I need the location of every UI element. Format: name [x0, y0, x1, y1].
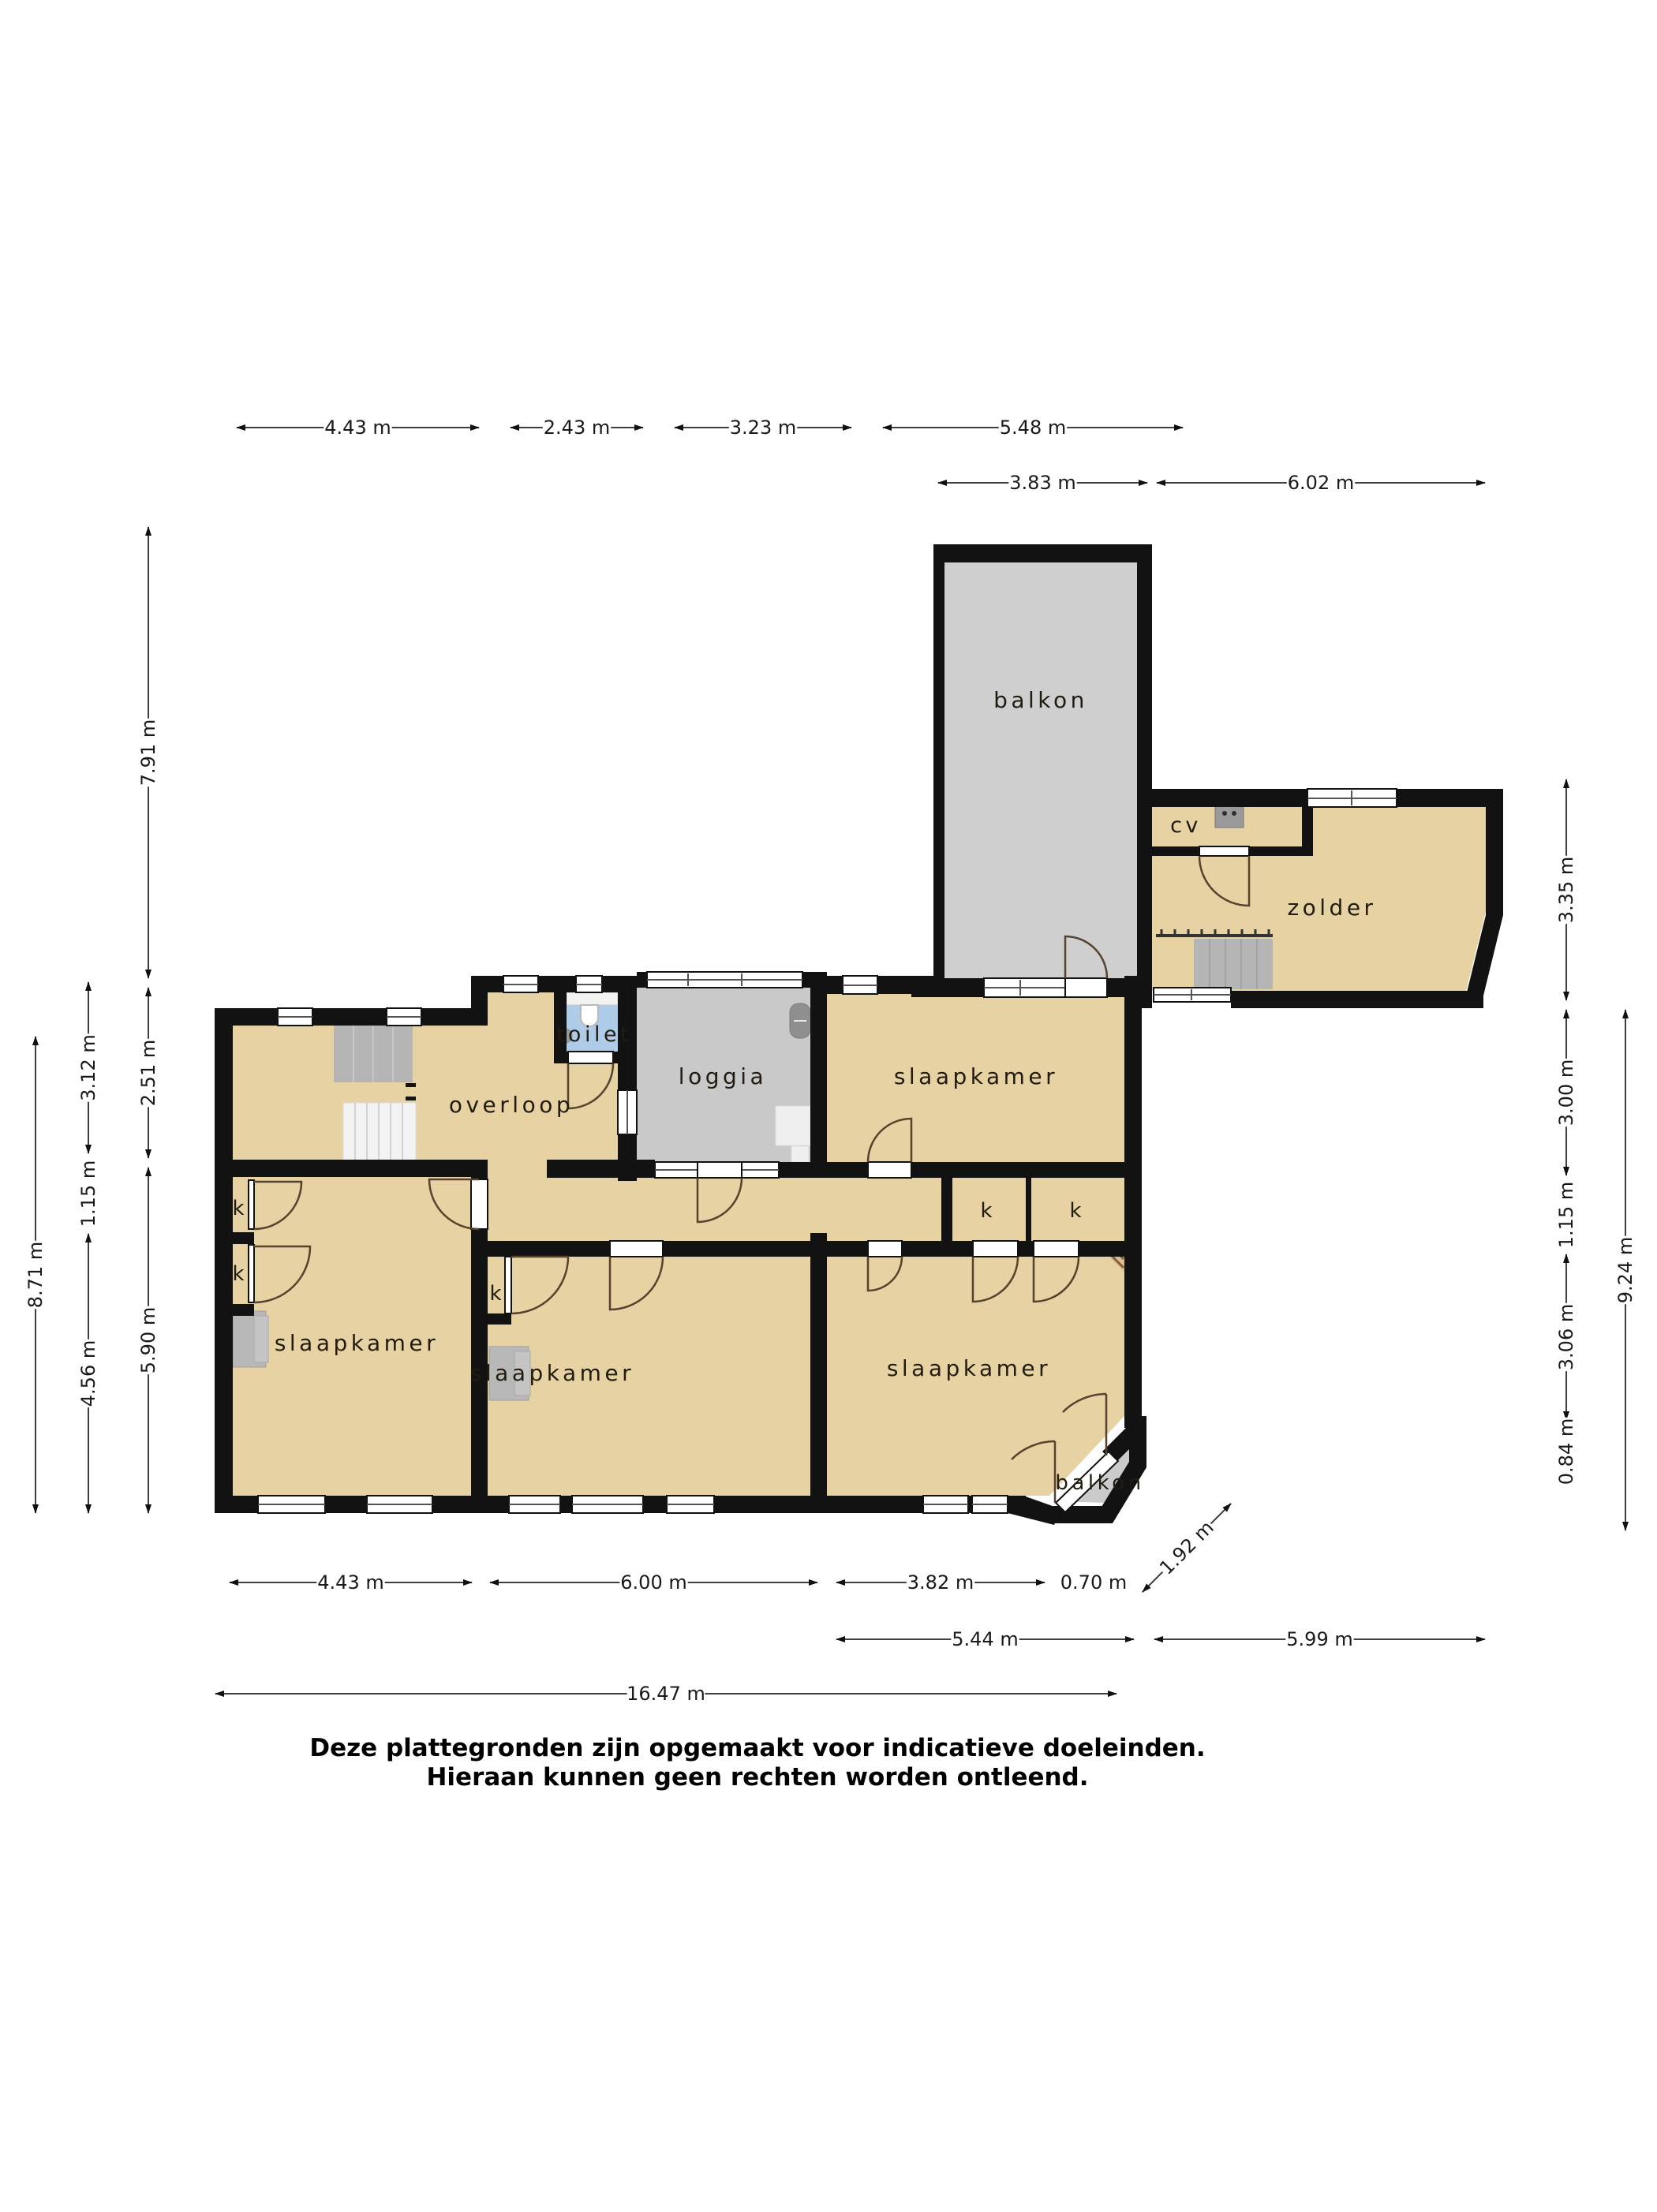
closet-door-1	[249, 1180, 254, 1229]
dimension-label: 5.90 m	[137, 1307, 159, 1373]
slaapkamer-right-door	[868, 1241, 902, 1257]
toilet-door	[568, 1052, 613, 1063]
cv-boiler-icon	[1215, 806, 1244, 828]
loggia-door	[698, 1162, 742, 1178]
dimension-label: 0.84 m	[1555, 1418, 1577, 1485]
dimension-label: 2.43 m	[544, 417, 610, 439]
dimension-label: 16.47 m	[627, 1683, 705, 1705]
dimension-4: 5.48 m	[883, 416, 1183, 439]
loggia-bench-small	[791, 1146, 809, 1162]
room-floors	[233, 562, 1486, 1503]
dimension-20: 4.43 m	[230, 1571, 472, 1594]
dimension-15: 3.00 m	[1554, 1010, 1578, 1175]
dimension-14: 3.35 m	[1554, 779, 1578, 1000]
balkon-top-door	[1065, 978, 1107, 997]
footer-note: Deze plattegronden zijn opgemaakt voor i…	[309, 1734, 1205, 1792]
room-label-overloop: overloop	[449, 1092, 574, 1118]
room-label-balkon-bottom: balkon	[1055, 1471, 1144, 1495]
closet-label-4: k	[980, 1199, 992, 1223]
dimension-11: 1.15 m	[77, 1160, 100, 1227]
dimension-label: 4.43 m	[317, 1571, 383, 1594]
dimension-21: 6.00 m	[490, 1571, 817, 1594]
dimension-label: 3.82 m	[907, 1571, 974, 1594]
dimension-19: 9.24 m	[1614, 1010, 1637, 1530]
dimension-2: 2.43 m	[511, 416, 643, 439]
toilet-cistern	[567, 992, 618, 1005]
dimension-5: 3.83 m	[938, 471, 1147, 495]
dimension-label: 3.83 m	[1009, 472, 1075, 494]
room-label-toilet: toilet	[556, 1022, 632, 1047]
room-label-zolder: zolder	[1287, 895, 1376, 921]
closet-label-3: k	[489, 1282, 501, 1306]
loggia-bench	[776, 1106, 810, 1145]
dimension-16: 1.15 m	[1554, 1181, 1578, 1249]
dimension-label: 3.00 m	[1555, 1059, 1577, 1126]
closet-door-3	[505, 1257, 511, 1313]
floor-plan: balkoncvzoldertoiletloggiaoverloopslaapk…	[0, 0, 1657, 2209]
dimension-23: 0.70 m	[1060, 1571, 1128, 1594]
dimension-8: 2.51 m	[137, 988, 160, 1158]
room-label-cv: cv	[1170, 813, 1202, 838]
balkon-top-floor	[944, 562, 1137, 981]
dimension-18: 0.84 m	[1554, 1418, 1578, 1485]
dimension-1: 4.43 m	[237, 416, 479, 439]
room-label-slaapkamer-right: slaapkamer	[887, 1355, 1051, 1381]
cv-door	[1199, 846, 1249, 856]
dimension-13: 8.71 m	[24, 1037, 47, 1513]
dimension-label: 2.51 m	[137, 1040, 159, 1106]
dimension-6: 6.02 m	[1157, 471, 1485, 495]
stairs-landing-upper-flight	[334, 1026, 413, 1082]
dimension-27: 16.47 m	[215, 1682, 1117, 1706]
dimension-label: 1.92 m	[1155, 1516, 1218, 1579]
room-label-balkon-top: balkon	[993, 687, 1088, 713]
dimension-label: 5.44 m	[952, 1628, 1018, 1650]
dimension-label: 7.91 m	[137, 719, 159, 786]
closet-label-5: k	[1069, 1199, 1081, 1223]
dimension-label: 6.02 m	[1288, 472, 1354, 494]
dimension-24: 5.44 m	[836, 1627, 1134, 1651]
footer-line-1: Deze plattegronden zijn opgemaakt voor i…	[309, 1734, 1205, 1762]
dimension-label: 4.56 m	[77, 1340, 99, 1407]
dimension-label: 9.24 m	[1614, 1237, 1636, 1303]
dimension-label: 3.12 m	[77, 1034, 99, 1100]
dimension-9: 5.90 m	[137, 1168, 160, 1513]
dimension-25: 5.99 m	[1154, 1627, 1485, 1651]
dimension-10: 3.12 m	[77, 982, 100, 1153]
room-label-slaapkamer-left: slaapkamer	[275, 1330, 439, 1356]
dimension-label: 1.15 m	[1555, 1182, 1577, 1248]
closet-door-5	[1034, 1241, 1079, 1257]
closet-label-1: k	[232, 1197, 244, 1220]
dimension-7: 7.91 m	[137, 527, 160, 978]
dimension-12: 4.56 m	[77, 1234, 100, 1513]
dimension-label: 5.99 m	[1286, 1628, 1352, 1650]
closet-label-2: k	[232, 1262, 244, 1286]
dimension-17: 3.06 m	[1554, 1254, 1578, 1420]
dimension-label: 1.15 m	[77, 1160, 99, 1227]
room-label-loggia: loggia	[679, 1063, 767, 1089]
room-label-slaapkamer-top: slaapkamer	[894, 1063, 1058, 1089]
dimension-label: 8.71 m	[24, 1242, 47, 1308]
footer-line-2: Hieraan kunnen geen rechten worden ontle…	[426, 1763, 1088, 1792]
dimension-label: 3.35 m	[1555, 857, 1577, 923]
room-label-slaapkamer-middle: slaapkamer	[470, 1360, 634, 1386]
slaapkamer-middle-door	[610, 1241, 663, 1257]
dimension-label: 0.70 m	[1060, 1571, 1127, 1594]
slaapkamer-top-door	[868, 1162, 911, 1178]
dimension-label: 6.00 m	[620, 1571, 686, 1594]
dimension-26: 1.92 m	[1143, 1504, 1231, 1592]
dimension-label: 3.23 m	[730, 417, 796, 439]
dimension-label: 4.43 m	[324, 417, 391, 439]
closet-door-4	[973, 1241, 1018, 1257]
dimension-22: 3.82 m	[836, 1571, 1045, 1594]
closet-door-2	[249, 1245, 254, 1302]
slaapkamer-left-door	[471, 1179, 488, 1229]
dimension-label: 3.06 m	[1555, 1304, 1577, 1370]
dimension-3: 3.23 m	[675, 416, 851, 439]
dimension-label: 5.48 m	[1000, 417, 1066, 439]
